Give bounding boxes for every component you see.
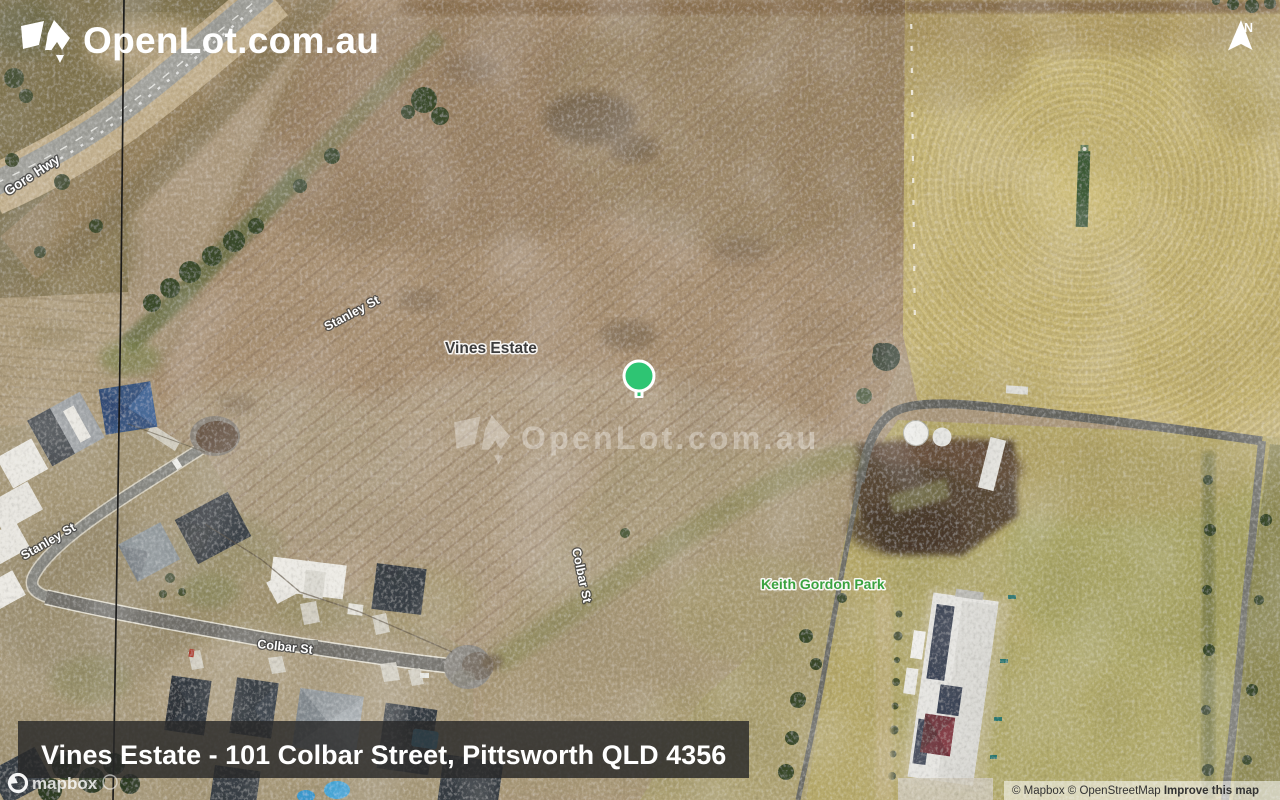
svg-text:Keith Gordon Park: Keith Gordon Park bbox=[761, 576, 885, 592]
svg-text:Vines Estate - 101 Colbar Stre: Vines Estate - 101 Colbar Street, Pittsw… bbox=[41, 740, 726, 770]
svg-text:N: N bbox=[1244, 21, 1253, 35]
svg-text:OpenLot.com.au: OpenLot.com.au bbox=[521, 420, 820, 456]
svg-text:© Mapbox © OpenStreetMap Impro: © Mapbox © OpenStreetMap Improve this ma… bbox=[1012, 785, 1259, 797]
svg-text:OpenLot.com.au: OpenLot.com.au bbox=[83, 20, 379, 61]
svg-text:mapbox: mapbox bbox=[32, 774, 98, 793]
svg-text:Vines Estate: Vines Estate bbox=[445, 340, 537, 357]
